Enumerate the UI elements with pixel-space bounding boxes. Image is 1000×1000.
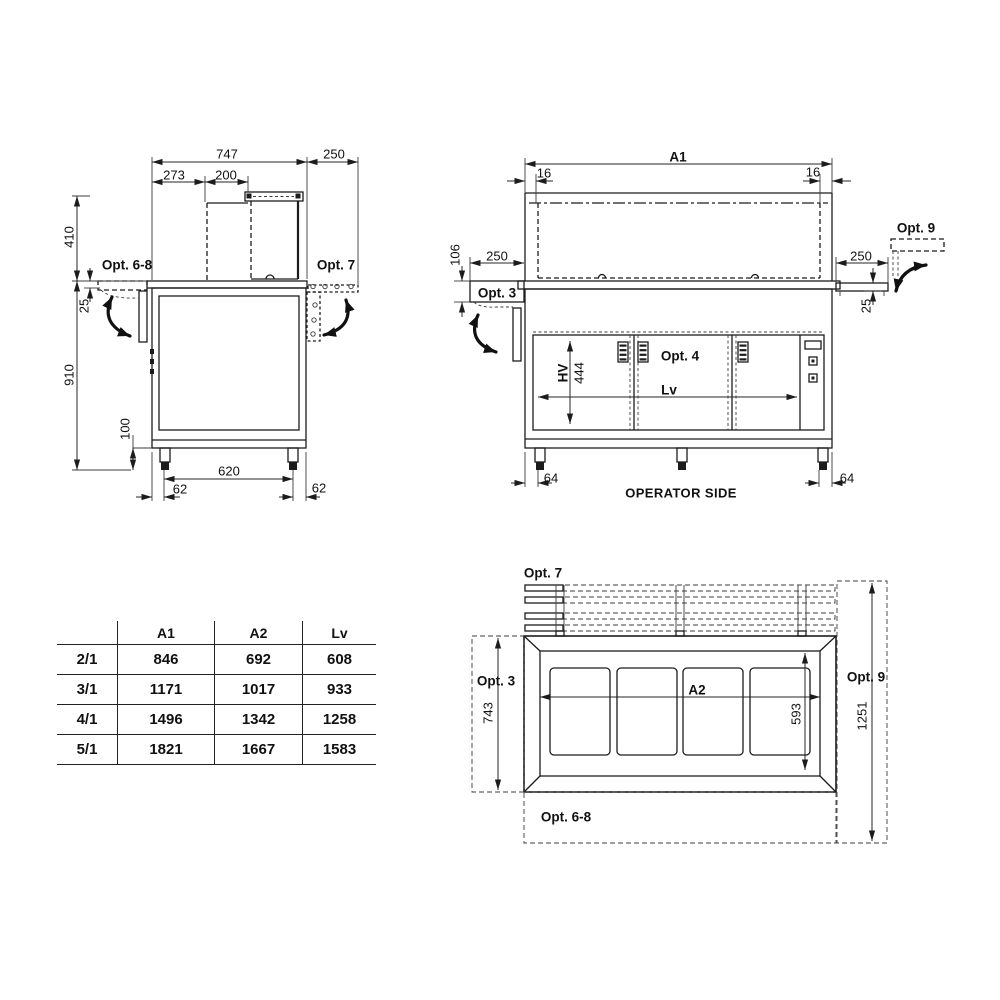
top-view-structure: [472, 581, 887, 843]
a2-cell: 692: [215, 645, 303, 675]
counter-inner-frame: [540, 651, 820, 776]
dim-a2-label: A2: [688, 683, 705, 698]
dimensions-table: A1 A2 Lv 2/1 846 692 608 3/1 1171 1017 9…: [57, 621, 376, 765]
table-header-model: [57, 621, 118, 645]
gn-pan-well: [617, 668, 677, 755]
dim-64-left-label: 64: [544, 471, 558, 486]
table-header-a2: A2: [215, 621, 303, 645]
counter-top: [147, 281, 307, 288]
dim-444-label: 444: [572, 362, 587, 384]
side-view-structure: [98, 192, 358, 470]
vent-grille-icon: [638, 342, 648, 362]
model-cell: 4/1: [57, 705, 118, 735]
dim-250-label: 250: [323, 147, 345, 162]
counter-top: [518, 281, 840, 289]
a1-cell: 1496: [118, 705, 215, 735]
foot: [161, 462, 169, 470]
dim-25-label: 25: [859, 299, 874, 313]
a2-cell: 1667: [215, 735, 303, 765]
table-header-row: A1 A2 Lv: [57, 621, 376, 645]
table-header-a1: A1: [118, 621, 215, 645]
leg: [288, 448, 298, 462]
side-shelf-down: [513, 308, 521, 361]
model-cell: 5/1: [57, 735, 118, 765]
dim-62-left-label: 62: [173, 482, 187, 497]
fold-arrow-icon: [108, 297, 130, 336]
control-display: [805, 341, 821, 349]
leg: [160, 448, 170, 462]
a1-cell: 846: [118, 645, 215, 675]
lv-cell: 1583: [303, 735, 377, 765]
a2-cell: 1342: [215, 705, 303, 735]
leg: [677, 448, 687, 462]
model-cell: 3/1: [57, 675, 118, 705]
dim-410-label: 410: [62, 226, 77, 248]
lv-cell: 1258: [303, 705, 377, 735]
folding-shelf-up: [98, 281, 147, 290]
fold-arrow-icon: [475, 315, 496, 352]
cabinet-body: [152, 288, 306, 448]
model-cell: 2/1: [57, 645, 118, 675]
dim-250-left-label: 250: [486, 249, 508, 264]
dim-106-label: 106: [448, 244, 463, 266]
folding-shelf-down: [139, 291, 147, 342]
tray-rail-down: [307, 292, 320, 341]
dim-64-right-label: 64: [840, 471, 854, 486]
dim-1251-label: 1251: [855, 702, 870, 731]
dim-273-label: 273: [163, 168, 185, 183]
a2-cell: 1017: [215, 675, 303, 705]
opt-7-label: Opt. 7: [524, 566, 562, 581]
dim-250-right-label: 250: [850, 249, 872, 264]
front-view-dimensions: [454, 158, 888, 487]
top-view: Opt. 7 Opt. 3 743 A2 593 Opt. 9 1251 Opt…: [472, 566, 887, 844]
dim-16-left-label: 16: [537, 166, 551, 181]
dim-16-right-label: 16: [806, 165, 820, 180]
opt-6-8-label: Opt. 6-8: [102, 258, 153, 273]
opt-4-label: Opt. 4: [661, 349, 700, 364]
hinge-mark: [150, 369, 154, 374]
dim-200-label: 200: [215, 168, 237, 183]
opt-9-label: Opt. 9: [897, 221, 935, 236]
a1-cell: 1171: [118, 675, 215, 705]
tray-rail-raised: [891, 239, 944, 251]
lv-cell: 933: [303, 675, 377, 705]
table-row: 3/1 1171 1017 933: [57, 675, 376, 705]
technical-drawing: 747 250 273 200 410 Opt. 6-8 Opt. 7 25 9…: [0, 0, 1000, 1000]
opt-9-label: Opt. 9: [847, 670, 885, 685]
foot: [289, 462, 297, 470]
dim-910-label: 910: [62, 364, 77, 386]
hinge-mark: [150, 349, 154, 354]
fold-arrow-icon: [896, 265, 926, 291]
vent-grille-icon: [738, 342, 748, 362]
dim-620-label: 620: [218, 464, 240, 479]
tray-rail-mounted: [836, 283, 888, 291]
vent-grille-icon: [618, 342, 628, 362]
leg: [535, 448, 545, 462]
leg: [818, 448, 828, 462]
opt-7-label: Opt. 7: [317, 258, 355, 273]
table-row: 5/1 1821 1667 1583: [57, 735, 376, 765]
opt-3-label: Opt. 3: [478, 286, 517, 301]
front-view-structure: [470, 193, 944, 470]
foot: [678, 462, 686, 470]
table-row: 4/1 1496 1342 1258: [57, 705, 376, 735]
front-view: A1 16 16 250 106 Opt. 3 250 Opt. 9 25 HV…: [448, 150, 945, 501]
foot: [536, 462, 544, 470]
opt-3-label: Opt. 3: [477, 674, 516, 689]
table-header-lv: Lv: [303, 621, 377, 645]
table-row: 2/1 846 692 608: [57, 645, 376, 675]
gn-pan-well: [683, 668, 743, 755]
lv-cell: 608: [303, 645, 377, 675]
top-view-dimensions: [498, 583, 872, 841]
dim-743-label: 743: [481, 702, 496, 724]
dim-25-label: 25: [77, 299, 92, 313]
cabinet-panel: [159, 296, 299, 430]
dim-593-label: 593: [789, 703, 804, 725]
dim-a1-label: A1: [669, 150, 687, 165]
dim-62-right-label: 62: [312, 481, 326, 496]
hinge-mark: [150, 359, 154, 364]
a1-cell: 1821: [118, 735, 215, 765]
gn-pan-well: [550, 668, 610, 755]
operator-side-caption: OPERATOR SIDE: [625, 486, 737, 501]
dim-100-label: 100: [118, 418, 133, 440]
technical-drawing-page: 747 250 273 200 410 Opt. 6-8 Opt. 7 25 9…: [0, 0, 1000, 1000]
foot: [819, 462, 827, 470]
dim-hv-label: HV: [556, 364, 571, 383]
dim-lv-label: Lv: [661, 383, 677, 398]
opt-6-8-label: Opt. 6-8: [541, 810, 592, 825]
side-view: 747 250 273 200 410 Opt. 6-8 Opt. 7 25 9…: [62, 147, 359, 502]
fold-arrow-icon: [324, 300, 348, 335]
dim-747-label: 747: [216, 147, 238, 162]
